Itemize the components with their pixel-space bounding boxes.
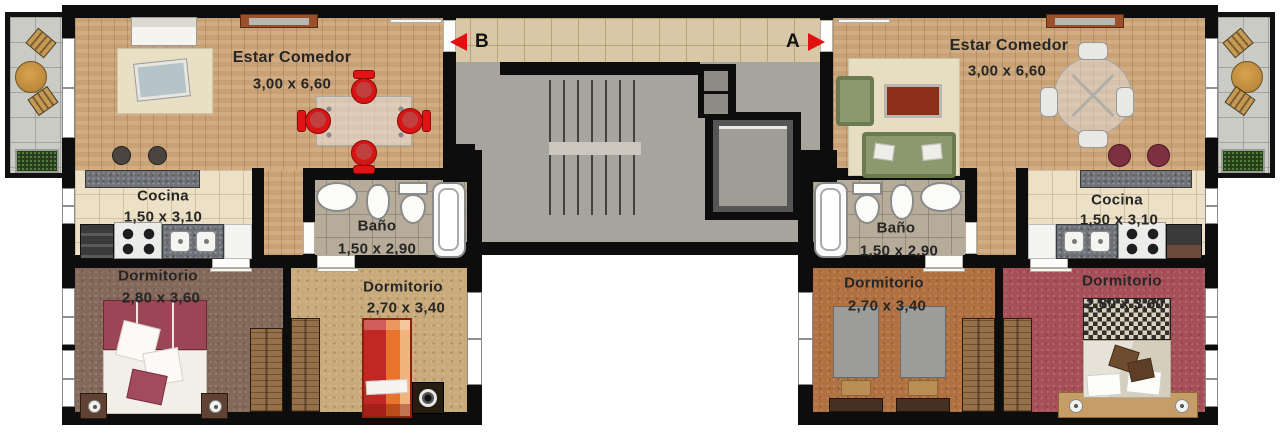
pillow — [1086, 373, 1121, 397]
wardrobe — [962, 318, 995, 412]
dining-chair — [1078, 42, 1108, 60]
bathtub-basin — [820, 188, 841, 251]
cabinet — [224, 224, 252, 259]
shelf-top — [249, 18, 309, 25]
window — [62, 350, 75, 407]
dining-chair — [351, 78, 377, 104]
sofa — [862, 132, 956, 178]
bathtub — [432, 182, 466, 258]
section-arrow-left-icon — [450, 33, 467, 51]
wardrobe — [1003, 318, 1032, 412]
pouf — [1108, 144, 1131, 167]
room-label: Baño — [358, 218, 397, 235]
bidet — [890, 184, 914, 220]
wall — [1016, 168, 1028, 262]
stair-flight-lower — [549, 155, 641, 215]
planter — [15, 149, 59, 173]
room-dims: 2,80 x 3,60 — [1086, 296, 1164, 313]
room-dims: 2,70 x 3,40 — [848, 298, 926, 315]
console-shelf — [240, 14, 318, 28]
knob — [209, 400, 222, 413]
wardrobe — [250, 328, 283, 412]
knob — [1175, 399, 1189, 413]
room-label: Dormitorio — [363, 279, 443, 296]
pouf — [148, 146, 167, 165]
elevator-cab — [719, 126, 787, 206]
single-bed — [900, 306, 946, 412]
section-marker-b-label: B — [475, 31, 489, 53]
balcony-left — [5, 12, 62, 178]
floor-plan: B A Estar Comedor 3,00 x 6,60 Cocina 1,5… — [0, 0, 1280, 439]
window — [798, 292, 813, 385]
room-dims: 2,80 x 3,60 — [122, 290, 200, 307]
room-dims: 1,50 x 2,90 — [338, 241, 416, 258]
stair-flight-upper — [549, 80, 641, 142]
room-label: Estar Comedor — [950, 37, 1069, 55]
room-label: Dormitorio — [844, 275, 924, 292]
window — [1205, 188, 1218, 224]
shelf-top — [1055, 18, 1115, 25]
door-leaf — [923, 268, 965, 272]
bed-mattress — [900, 306, 946, 378]
kitchen-counter — [1080, 170, 1192, 188]
kitchen-counter — [85, 170, 200, 188]
knob — [88, 400, 101, 413]
single-bed — [362, 318, 412, 418]
bed-mattress — [833, 306, 879, 378]
wall — [303, 168, 467, 180]
pillow — [366, 379, 409, 395]
cushion — [921, 143, 943, 161]
window — [62, 288, 75, 345]
stove — [114, 222, 162, 259]
section-marker-a: A — [786, 31, 825, 53]
door-opening-bath-right — [965, 222, 977, 254]
bidet — [366, 184, 390, 220]
dining-chair — [1040, 87, 1058, 117]
door-leaf — [210, 268, 252, 272]
door-opening-bath-left — [303, 222, 315, 254]
kitchen-sink — [1064, 231, 1084, 252]
sink-counter — [1056, 224, 1118, 259]
wall — [500, 62, 700, 75]
bed-foot — [364, 404, 410, 416]
room-label: Estar Comedor — [233, 49, 352, 67]
door-leaf — [838, 19, 890, 23]
wardrobe — [291, 318, 320, 412]
window — [62, 188, 75, 224]
sink-counter — [162, 224, 224, 259]
console-shelf — [1046, 14, 1124, 28]
oven — [80, 224, 114, 259]
bathtub-basin — [438, 188, 459, 251]
wall — [995, 263, 1003, 412]
balcony-chair — [1222, 28, 1253, 59]
dining-chair — [1116, 87, 1134, 117]
balcony-right — [1218, 12, 1275, 178]
pillow — [908, 380, 938, 396]
nightstand — [80, 393, 107, 419]
bed-bench — [829, 398, 883, 412]
coffee-table — [884, 84, 942, 118]
dining-chair — [305, 108, 331, 134]
stair-landing — [549, 142, 641, 155]
room-label: Baño — [877, 220, 916, 237]
section-marker-a-label: A — [786, 31, 800, 53]
room-dims: 1,50 x 2,90 — [860, 243, 938, 260]
pouf — [112, 146, 131, 165]
door-leaf — [317, 268, 359, 272]
knob — [1069, 399, 1083, 413]
bed-fold — [364, 320, 410, 330]
room-dims: 1,50 x 3,10 — [124, 209, 202, 226]
room-dims: 2,70 x 3,40 — [367, 300, 445, 317]
fridge — [1166, 224, 1202, 259]
door-leaf — [1030, 268, 1072, 272]
cabinet — [1028, 224, 1056, 259]
sofa — [131, 17, 197, 46]
wall — [62, 5, 1218, 18]
speaker-table — [412, 382, 444, 414]
room-label: Dormitorio — [1082, 273, 1162, 290]
pouf — [1147, 144, 1170, 167]
bed-bench — [896, 398, 950, 412]
wall — [283, 263, 291, 412]
dining-chair — [397, 108, 423, 134]
room-dims: 3,00 x 6,60 — [968, 63, 1046, 80]
wall — [443, 242, 833, 255]
single-bed — [833, 306, 879, 412]
balcony-door-right — [1205, 38, 1218, 138]
kitchen-sink — [170, 231, 190, 252]
duct — [704, 94, 728, 114]
window — [467, 292, 482, 385]
window — [1205, 288, 1218, 345]
door-leaf — [390, 19, 442, 23]
washbasin — [316, 182, 358, 212]
wall — [252, 168, 264, 262]
section-arrow-right-icon — [808, 33, 825, 51]
balcony-chair — [25, 28, 56, 59]
nightstand — [201, 393, 228, 419]
planter — [1221, 149, 1265, 173]
pillow — [841, 380, 871, 396]
double-bed — [103, 300, 207, 414]
speaker — [419, 389, 437, 407]
room-label: Dormitorio — [118, 268, 198, 285]
washbasin — [920, 182, 962, 212]
double-bed — [1083, 298, 1171, 398]
window — [1205, 350, 1218, 407]
room-label: Cocina — [137, 188, 189, 205]
room-label: Cocina — [1091, 192, 1143, 209]
section-marker-b: B — [450, 31, 489, 53]
balcony-door-left — [62, 38, 75, 138]
room-dims: 1,50 x 3,10 — [1080, 212, 1158, 229]
armchair — [836, 76, 874, 126]
duct — [704, 71, 728, 91]
coffee-table — [134, 59, 189, 100]
kitchen-sink — [1090, 231, 1110, 252]
hallway-floor — [443, 18, 833, 62]
room-dims: 3,00 x 6,60 — [253, 76, 331, 93]
kitchen-sink — [196, 231, 216, 252]
dining-chair — [351, 140, 377, 166]
dining-chair — [1078, 130, 1108, 148]
cushion — [873, 143, 895, 162]
bathtub — [814, 182, 848, 258]
